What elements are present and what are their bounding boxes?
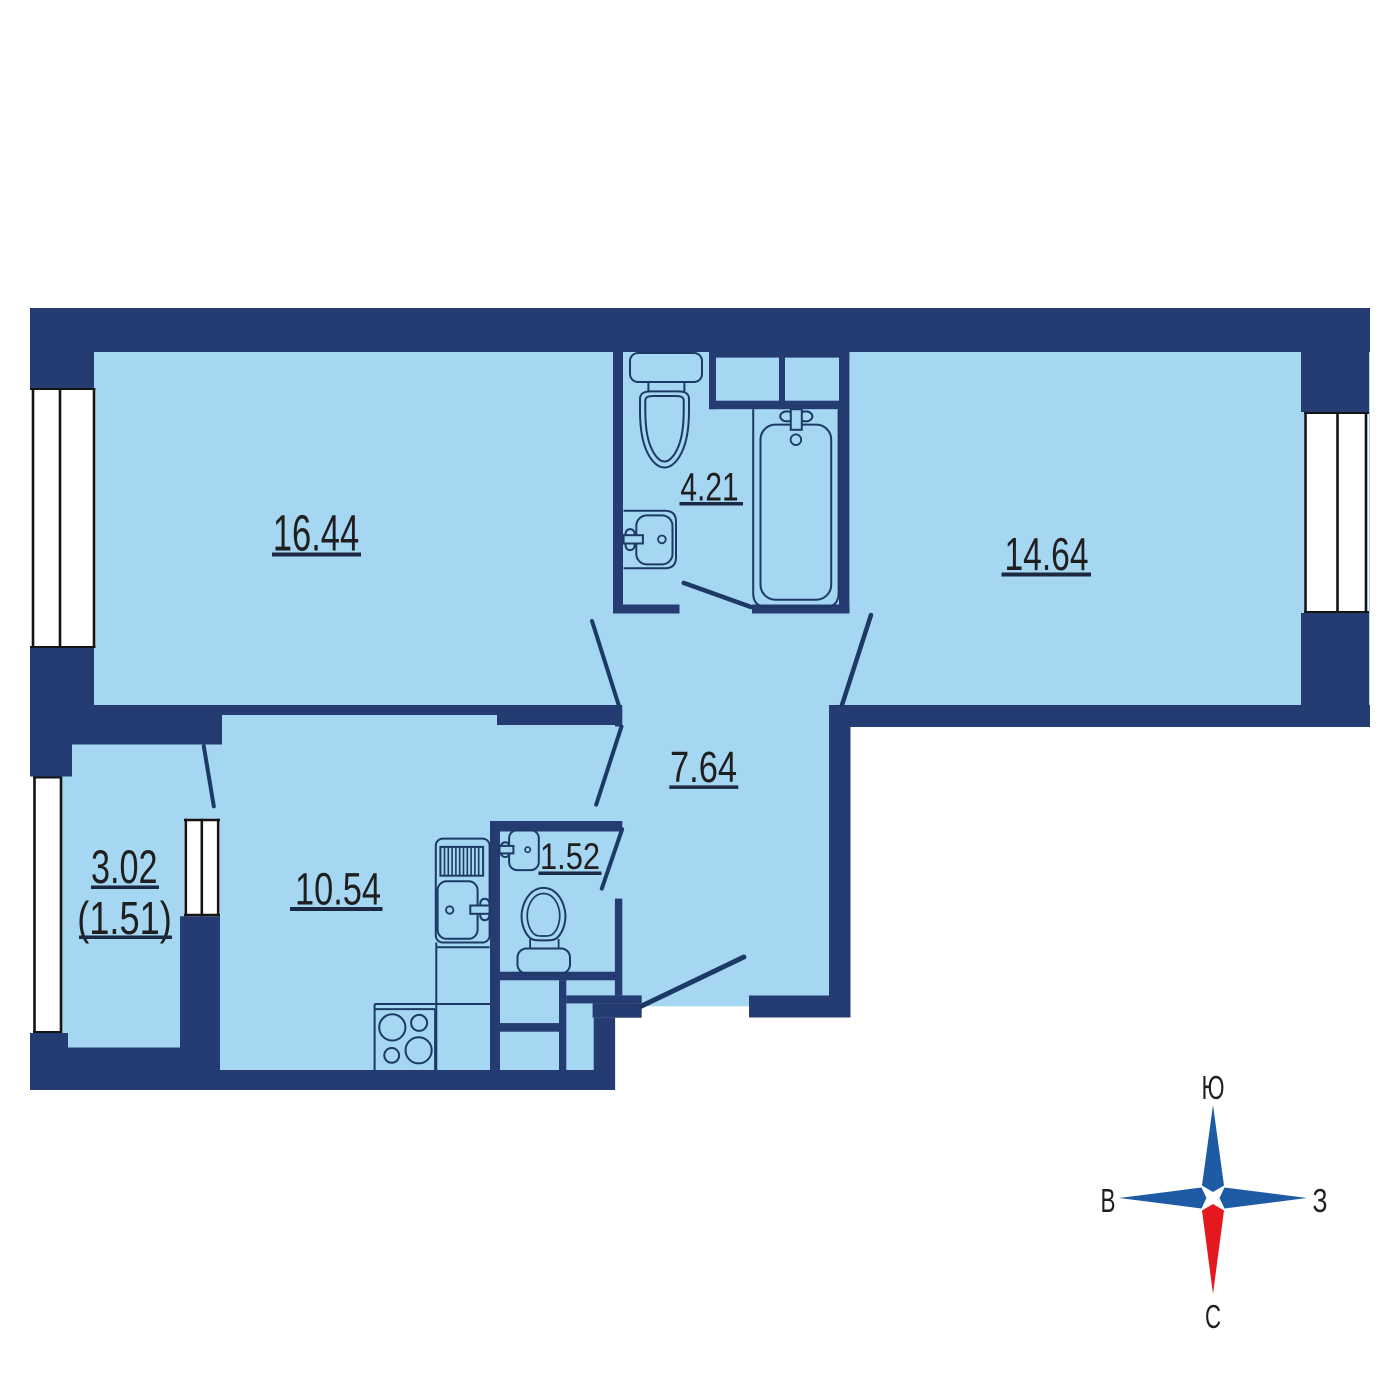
- svg-text:3.02: 3.02: [91, 840, 158, 893]
- svg-text:10.54: 10.54: [295, 864, 381, 915]
- svg-text:В: В: [1101, 1182, 1116, 1219]
- svg-text:С: С: [1205, 1298, 1221, 1335]
- svg-text:З: З: [1313, 1182, 1328, 1219]
- svg-text:14.64: 14.64: [1005, 528, 1089, 580]
- svg-text:Ю: Ю: [1202, 1069, 1225, 1106]
- svg-text:7.64: 7.64: [670, 744, 737, 792]
- svg-text:1.52: 1.52: [540, 836, 600, 877]
